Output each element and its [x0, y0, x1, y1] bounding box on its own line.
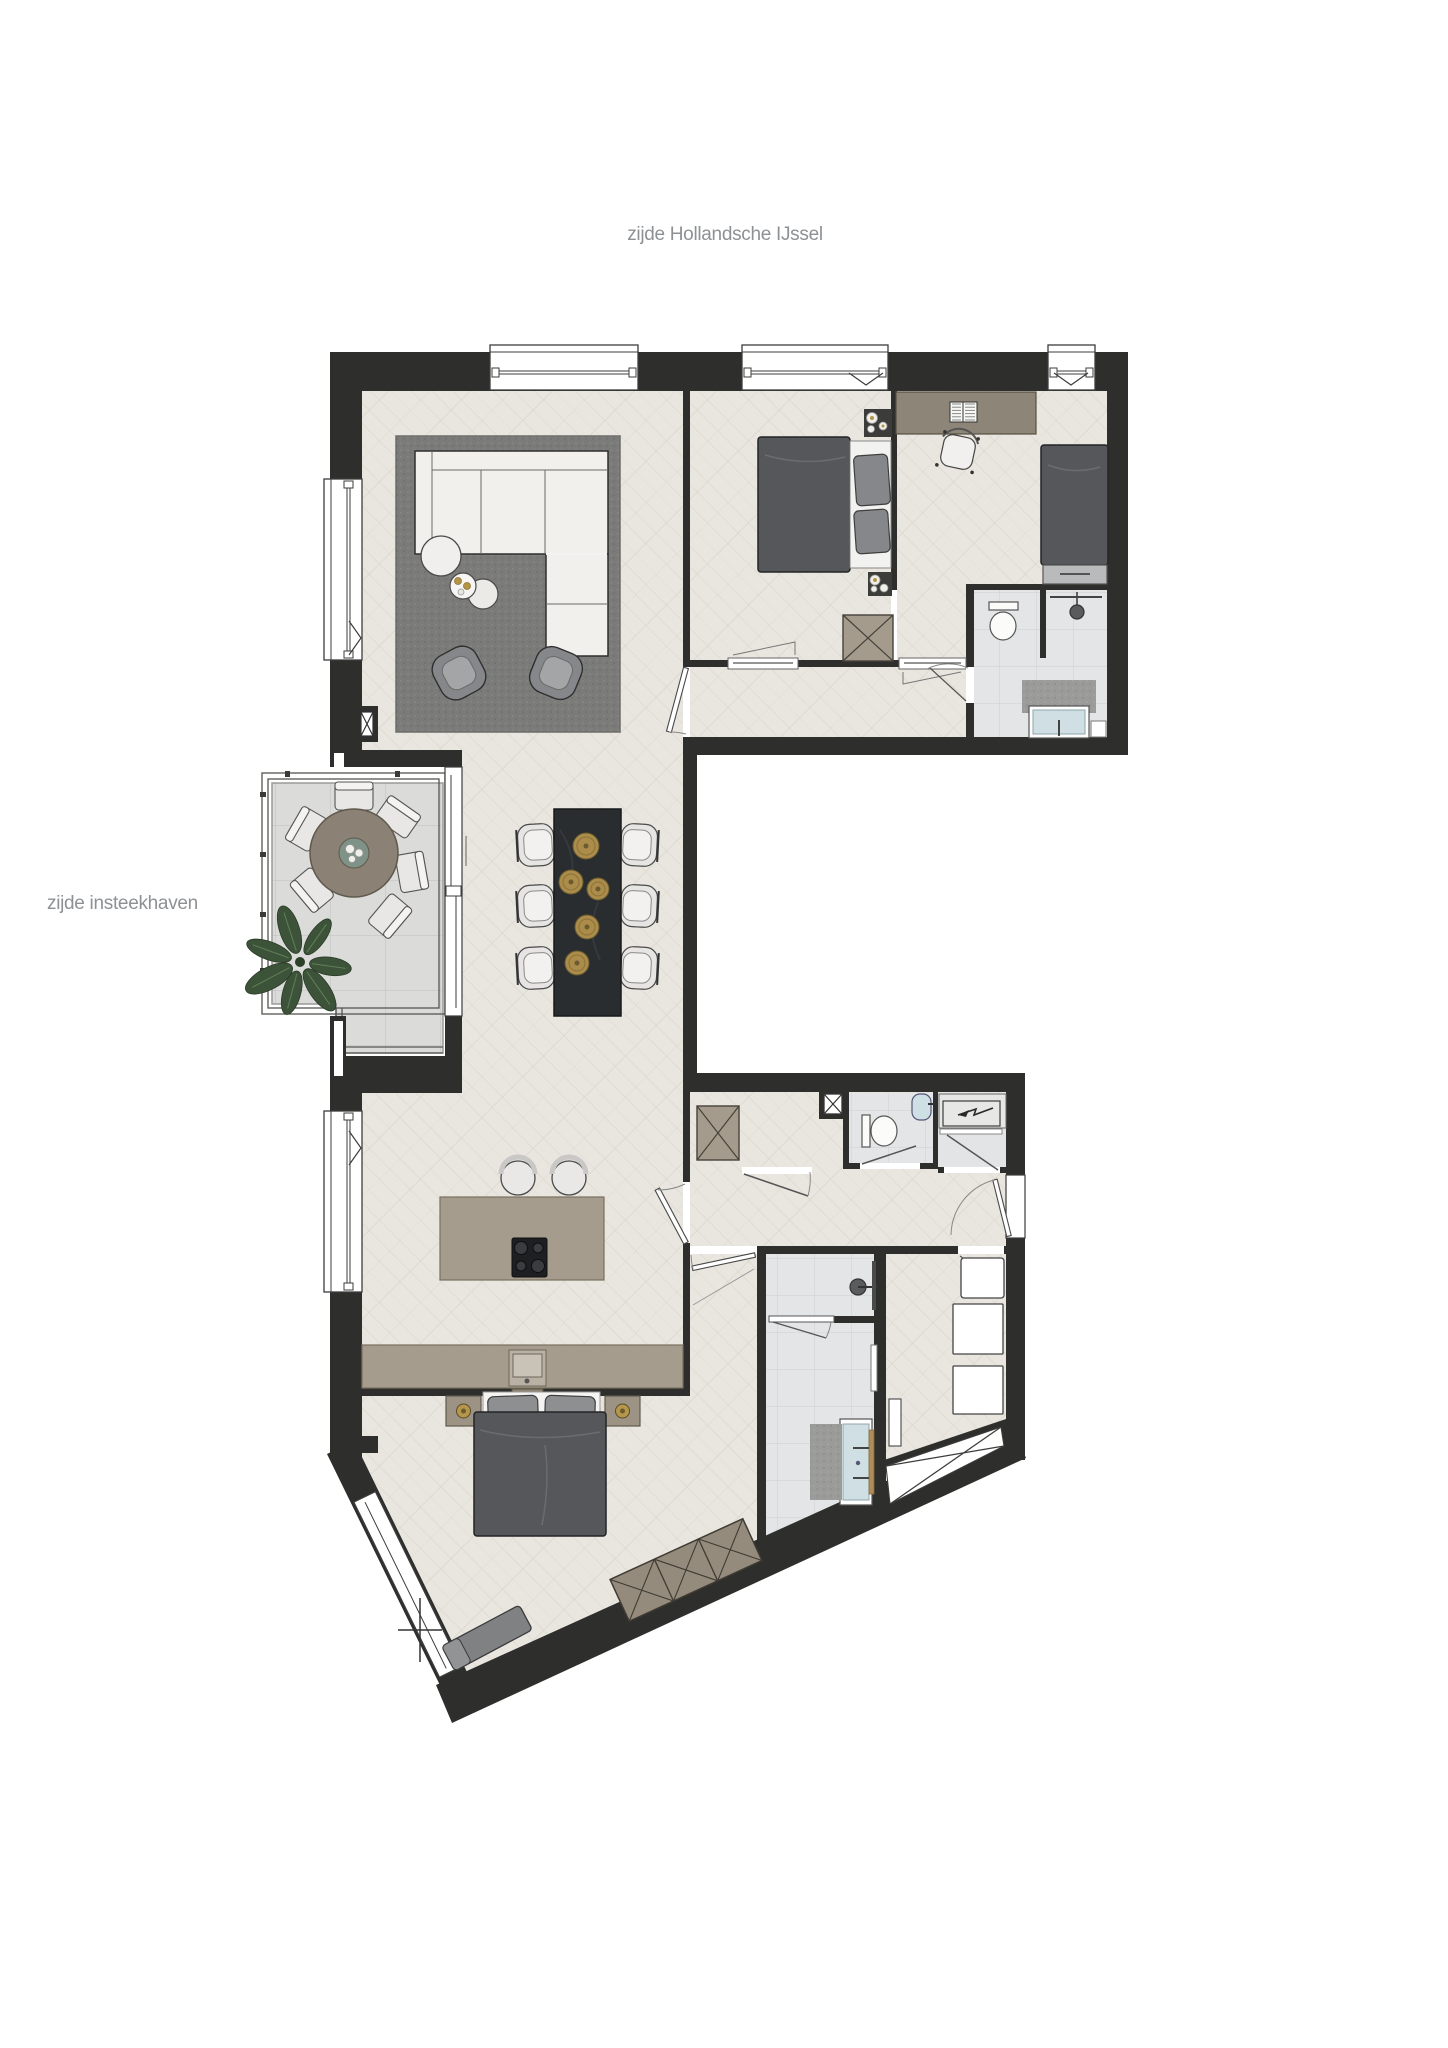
svg-text:zijde insteekhaven: zijde insteekhaven — [47, 893, 198, 914]
svg-text:zijde Hollandsche IJssel: zijde Hollandsche IJssel — [627, 224, 823, 245]
